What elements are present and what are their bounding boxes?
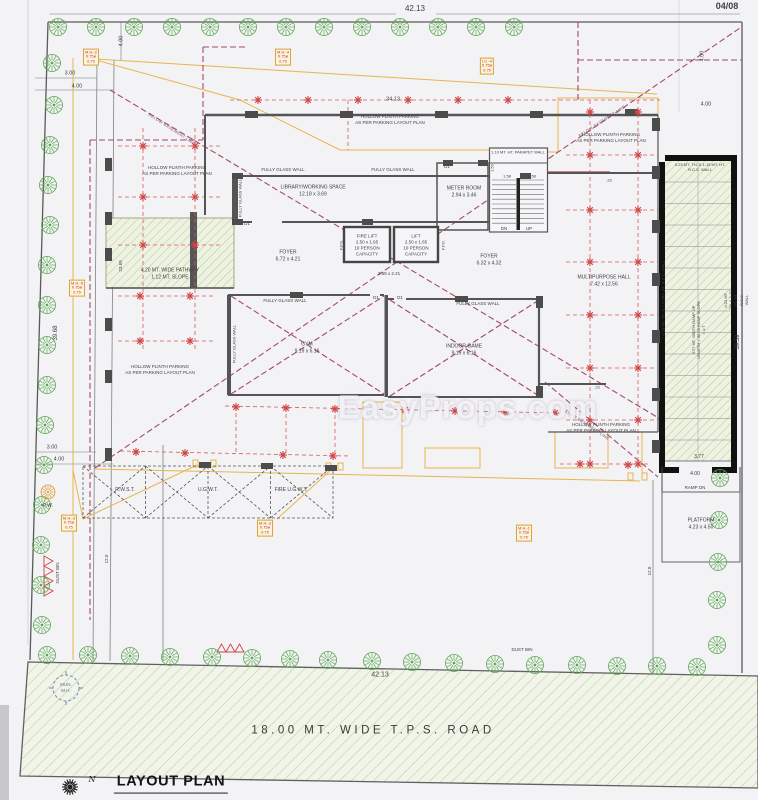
plan-linework: [0, 0, 758, 800]
layout-plan-sheet: 04/08 42.13 4.00 3.00 4.00 4.00 4.00 34.…: [0, 0, 758, 800]
drainage-lines: [73, 58, 658, 660]
platform-outline: [662, 492, 740, 562]
paper-edge-shadow: [0, 705, 9, 800]
dust-bin-symbols: [44, 556, 244, 652]
lift-shaft: [394, 227, 438, 262]
pathway-area: [106, 218, 234, 288]
tps-road-band: [20, 662, 758, 788]
meter-room-walls: [437, 163, 488, 230]
ramp: [659, 155, 740, 492]
basement-lines: [90, 22, 742, 620]
building-walls: [205, 115, 658, 432]
staircase: [490, 148, 548, 232]
fire-lift-shaft: [344, 227, 390, 262]
